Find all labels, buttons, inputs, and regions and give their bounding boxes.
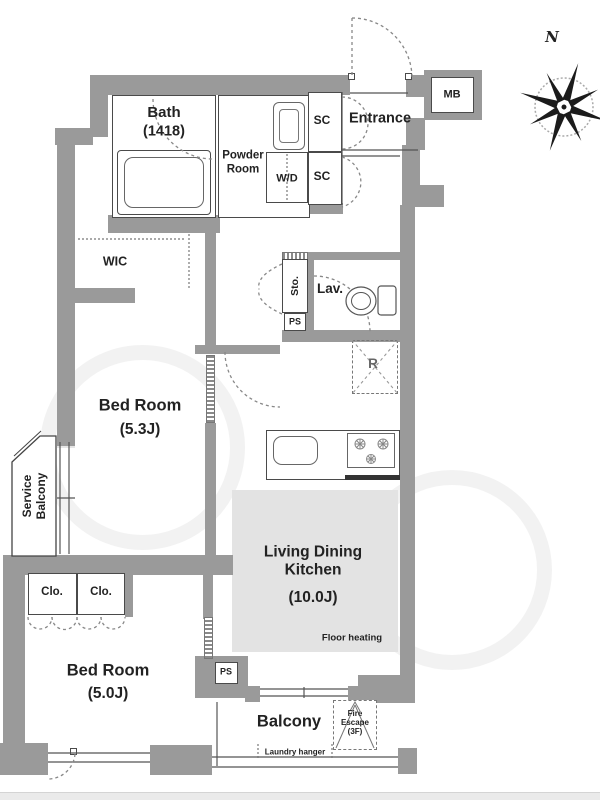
room-label-service-balcony: Service Balcony bbox=[20, 469, 48, 523]
wall bbox=[205, 233, 216, 347]
floor-heating-label: Floor heating bbox=[322, 632, 382, 643]
kitchen-sink bbox=[273, 436, 318, 465]
wall bbox=[282, 330, 308, 342]
room-label-sc-lower: SC bbox=[314, 169, 331, 183]
room-label-wic: WIC bbox=[103, 255, 127, 270]
room-size-ldk: (10.0J) bbox=[288, 589, 337, 607]
room-label-refrigerator: R bbox=[368, 356, 378, 372]
room-label-ldk: Living Dining Kitchen bbox=[238, 544, 388, 581]
wall bbox=[245, 686, 260, 702]
room-label-closet2: Clo. bbox=[90, 586, 112, 600]
room-label-ps-lower: PS bbox=[220, 667, 232, 678]
room-size-bedroom2: (5.0J) bbox=[88, 685, 129, 703]
compass-rose bbox=[506, 49, 600, 165]
washbasin-inner bbox=[279, 109, 299, 143]
wall bbox=[0, 743, 48, 775]
wall bbox=[3, 555, 233, 575]
wall bbox=[402, 145, 420, 189]
wall bbox=[57, 128, 75, 446]
bathtub-inner bbox=[124, 157, 204, 208]
laundry-hanger-label: Laundry hanger bbox=[265, 747, 325, 756]
wall bbox=[306, 252, 402, 260]
door-hinge bbox=[405, 73, 412, 80]
room-label-lavatory: Lav. bbox=[317, 281, 343, 297]
stove bbox=[347, 433, 395, 468]
room-label-closet1: Clo. bbox=[41, 586, 63, 600]
room-label-entrance: Entrance bbox=[349, 110, 411, 127]
sliding-door-bedroom2 bbox=[204, 617, 213, 659]
window-latch bbox=[70, 748, 77, 755]
wall bbox=[358, 675, 415, 703]
sliding-door-bedroom1 bbox=[206, 355, 215, 423]
wall bbox=[205, 423, 216, 555]
counter-edge bbox=[345, 475, 400, 480]
room-label-balcony: Balcony bbox=[257, 712, 321, 731]
room-label-powder-room: Powder Room bbox=[213, 149, 273, 176]
room-label-mb: MB bbox=[443, 89, 460, 102]
toilet bbox=[346, 286, 396, 315]
fire-escape-label: Fire Escape (3F) bbox=[334, 709, 376, 737]
wall bbox=[125, 573, 133, 617]
wall bbox=[400, 205, 415, 697]
wall bbox=[150, 745, 212, 775]
room-size-bath: (1418) bbox=[143, 123, 185, 140]
wall bbox=[3, 575, 25, 759]
room-label-bedroom1: Bed Room bbox=[99, 396, 182, 415]
room-label-wd: W/D bbox=[276, 173, 297, 186]
wall bbox=[195, 345, 280, 354]
compass-north-label: N bbox=[545, 29, 559, 47]
page-bottom-strip bbox=[0, 792, 600, 800]
room-size-bedroom1: (5.3J) bbox=[120, 421, 161, 439]
floor-plan: Bath (1418) Powder Room W/D SC SC Entran… bbox=[0, 0, 600, 800]
room-label-bath: Bath bbox=[147, 104, 180, 122]
room-label-storage: Sto. bbox=[289, 276, 301, 296]
wall bbox=[402, 185, 444, 207]
room-label-sc-upper: SC bbox=[314, 113, 331, 127]
wall bbox=[203, 575, 213, 619]
room-label-bedroom2: Bed Room bbox=[67, 661, 150, 680]
door-hinge bbox=[348, 73, 355, 80]
wall bbox=[398, 748, 417, 774]
room-label-ps-upper: PS bbox=[289, 317, 301, 328]
wall bbox=[75, 288, 135, 303]
